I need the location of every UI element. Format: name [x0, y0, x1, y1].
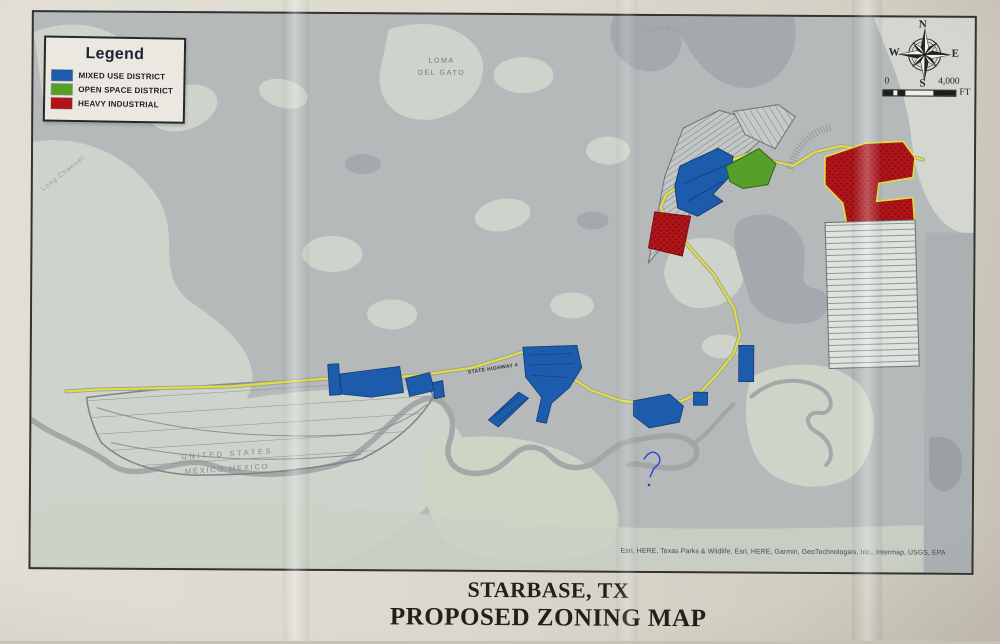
compass-east-label: E	[952, 48, 959, 60]
open-space-swatch-icon	[51, 84, 72, 95]
legend-item-mixed-use: MIXED USE DISTRICT	[51, 70, 177, 83]
map-frame: Legend MIXED USE DISTRICT OPEN SPACE DIS…	[28, 10, 976, 575]
compass-rose-icon	[896, 26, 952, 82]
scale-bar-segments	[883, 90, 955, 95]
title-block: STARBASE, TX PROPOSED ZONING MAP	[148, 575, 948, 635]
mixed-use-swatch-icon	[51, 70, 72, 81]
legend-item-heavy-industrial: HEAVY INDUSTRIAL	[51, 98, 177, 111]
map-sheet: Legend MIXED USE DISTRICT OPEN SPACE DIS…	[0, 0, 1000, 644]
legend-item-open-space: OPEN SPACE DISTRICT	[51, 84, 177, 97]
legend-item-label: HEAVY INDUSTRIAL	[78, 99, 159, 109]
loma-line1: LOMA	[392, 55, 492, 68]
solar-array	[825, 220, 919, 369]
legend-item-label: MIXED USE DISTRICT	[78, 71, 165, 81]
scale-bar: 0 4,000 FT	[881, 76, 973, 109]
south-bay-label: South Bay	[606, 26, 716, 34]
legend-box: Legend MIXED USE DISTRICT OPEN SPACE DIS…	[43, 35, 186, 123]
legend-item-label: OPEN SPACE DISTRICT	[78, 85, 173, 96]
map-title-city: STARBASE, TX	[148, 575, 948, 606]
heavy-industrial-swatch-icon	[51, 98, 72, 109]
scale-min-label: 0	[884, 76, 889, 86]
loma-line2: DEL GATO	[391, 67, 491, 80]
legend-title: Legend	[52, 45, 178, 65]
map-title-subtitle: PROPOSED ZONING MAP	[148, 602, 948, 635]
loma-del-gato-label: LOMA DEL GATO	[391, 55, 491, 80]
scale-unit-label: FT	[959, 88, 970, 98]
photo-backdrop: Legend MIXED USE DISTRICT OPEN SPACE DIS…	[0, 0, 1000, 641]
scale-max-label: 4,000	[938, 77, 959, 87]
